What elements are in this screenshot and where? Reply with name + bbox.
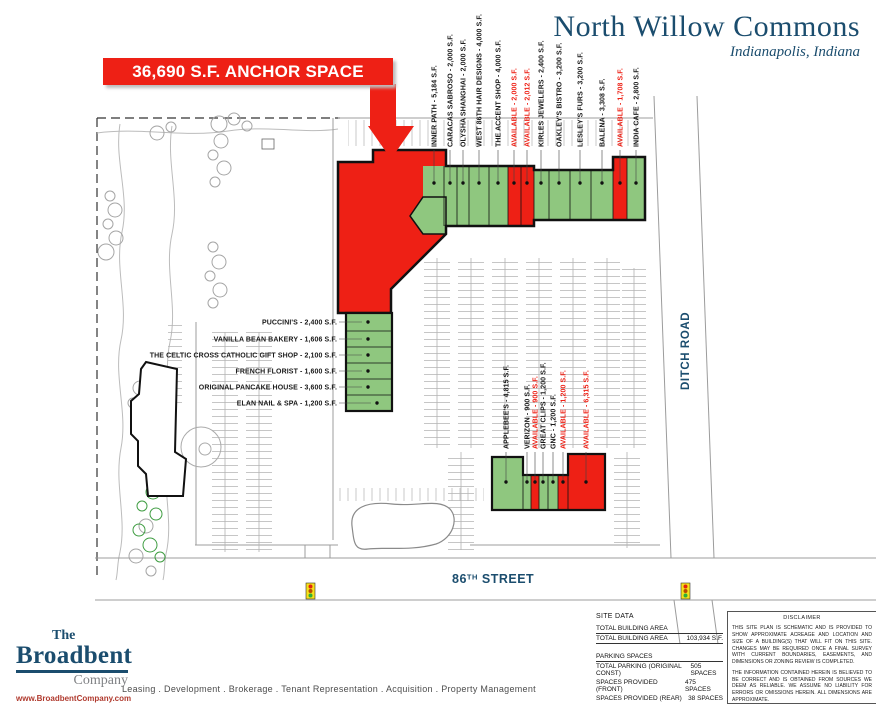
- logo-the: The: [52, 629, 128, 643]
- tenant-label-available: AVAILABLE - 900 S.F.: [533, 376, 540, 449]
- site-data-table: SITE DATA TOTAL BUILDING AREA TOTAL BUIL…: [596, 613, 723, 703]
- table-row: SPACES PROVIDED (FRONT) 475 SPACES: [596, 678, 723, 694]
- tenant-label: BALENA - 3,308 S.F.: [600, 78, 607, 147]
- row-label: SPACES PROVIDED (FRONT): [596, 679, 685, 693]
- disclaimer-box: DISCLAIMER THIS SITE PLAN IS SCHEMATIC A…: [727, 611, 876, 704]
- row-value: 38 SPACES: [688, 695, 723, 702]
- strip-mid-green: [534, 170, 613, 220]
- services-line: Leasing . Development . Brokerage . Tena…: [122, 684, 536, 694]
- tenant-label: VANILLA BEAN BAKERY - 1,606 S.F.: [214, 337, 337, 344]
- title-block: North Willow Commons Indianapolis, India…: [553, 10, 860, 61]
- tenant-label: WEST 86TH HAIR DESIGNS - 4,000 S.F.: [477, 14, 484, 147]
- anchor-available-callout: 36,690 S.F. ANCHOR SPACE AVAILABLE: [103, 58, 393, 85]
- site-data-title: SITE DATA: [596, 613, 723, 620]
- tenant-label: LESLEY'S FURS - 3,200 S.F.: [578, 52, 585, 147]
- tenant-label-available: AVAILABLE - 2,000 S.F.: [512, 68, 519, 147]
- utility-pad: [262, 139, 274, 149]
- tenant-label: ORIGINAL PANCAKE HOUSE - 3,600 S.F.: [199, 385, 337, 392]
- table-row: SPACES PROVIDED (REAR) 38 SPACES: [596, 694, 723, 703]
- tenant-label: INNER PATH - 5,184 S.F.: [432, 65, 439, 147]
- tenant-label: APPLEBEE'S - 4,815 S.F.: [504, 365, 511, 449]
- disclaimer-paragraph: THIS SITE PLAN IS SCHEMATIC AND IS PROVI…: [732, 625, 872, 666]
- tenant-label: VERIZON - 900 S.F.: [525, 384, 532, 449]
- table-row: TOTAL BUILDING AREA 103,934 S.F.: [596, 634, 723, 644]
- row-value: 103,934 S.F.: [687, 635, 724, 642]
- logo-name: Broadbent: [16, 643, 128, 673]
- tenant-label-available: AVAILABLE - 6,315 S.F.: [584, 370, 591, 449]
- logo-company: Company: [16, 673, 128, 690]
- space-available-2000: [508, 166, 521, 226]
- tenant-label-available: AVAILABLE - 1,708 S.F.: [618, 68, 625, 147]
- tenant-label: GNC - 1,200 S.F.: [551, 394, 558, 449]
- broadbent-logo: The Broadbent Company www.BroadbentCompa…: [16, 629, 128, 703]
- space-available-2012: [521, 166, 534, 226]
- disclaimer-title: DISCLAIMER: [732, 615, 872, 622]
- tenant-label: CARACAS SABROSO - 2,000 S.F.: [448, 34, 455, 147]
- traffic-signal-icon: [681, 583, 690, 599]
- tenant-label: GREAT CLIPS - 1,200 S.F.: [541, 362, 548, 449]
- site-plan-drawing: INNER PATH - 5,184 S.F. CARACAS SABROSO …: [0, 0, 876, 712]
- pond: [352, 503, 454, 549]
- row-label: SPACES PROVIDED (REAR): [596, 695, 682, 702]
- ditch-road-label: DITCH ROAD: [680, 312, 692, 390]
- row-value: 475 SPACES: [685, 679, 723, 693]
- tenant-label: INDIA CAFE - 2,800 S.F.: [634, 67, 641, 147]
- parking-header: PARKING SPACES: [596, 653, 723, 662]
- tenant-label-available: AVAILABLE - 2,012 S.F.: [525, 68, 532, 147]
- row-value: 505 SPACES: [691, 663, 723, 677]
- tenant-label: FRENCH FLORIST - 1,600 S.F.: [236, 369, 338, 376]
- page-subtitle: Indianapolis, Indiana: [553, 44, 860, 61]
- building-area-header: TOTAL BUILDING AREA: [596, 625, 723, 634]
- street-86-label: 86TH STREET: [452, 572, 534, 586]
- logo-website: www.BroadbentCompany.com: [16, 694, 128, 703]
- disclaimer-paragraph: THE INFORMATION CONTAINED HEREIN IS BELI…: [732, 670, 872, 704]
- south-wing-green: [346, 313, 392, 411]
- tenant-label: OLYSHA SHANGHAI - 2,000 S.F.: [461, 39, 468, 147]
- tenant-label: THE ACCENT SHOP - 4,000 S.F.: [496, 40, 503, 147]
- tenant-label: ELAN NAIL & SPA - 1,200 S.F.: [237, 401, 337, 408]
- table-row: TOTAL PARKING (ORIGINAL CONST) 505 SPACE…: [596, 662, 723, 678]
- tenant-label: KIRLES JEWELERS - 2,400 S.F.: [539, 40, 546, 147]
- space-applebees: [492, 457, 523, 510]
- traffic-signal-icon: [306, 583, 315, 599]
- space-great-clips: [539, 475, 548, 510]
- page-title: North Willow Commons: [553, 10, 860, 43]
- tenant-label-available: AVAILABLE - 1,200 S.F.: [561, 370, 568, 449]
- row-label: TOTAL BUILDING AREA: [596, 635, 668, 642]
- row-label: TOTAL PARKING (ORIGINAL CONST): [596, 663, 691, 677]
- site-plan-page: INNER PATH - 5,184 S.F. CARACAS SABROSO …: [0, 0, 876, 712]
- tenant-label: THE CELTIC CROSS CATHOLIC GIFT SHOP - 2,…: [150, 353, 337, 360]
- tenant-label: PUCCINI'S - 2,400 S.F.: [262, 320, 337, 327]
